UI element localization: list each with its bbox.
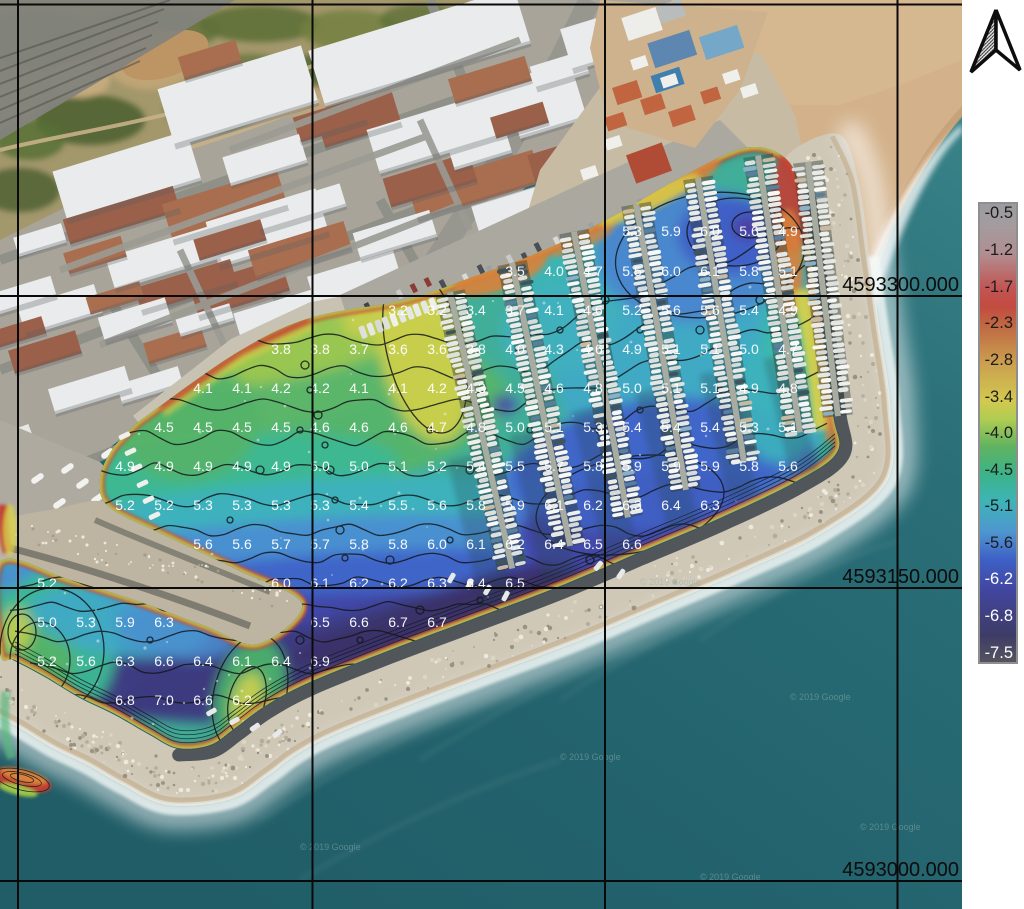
svg-text:5.8: 5.8 [583, 458, 603, 474]
svg-text:-1.7: -1.7 [985, 278, 1013, 296]
svg-text:5.9: 5.9 [700, 458, 720, 474]
svg-text:3.6: 3.6 [388, 341, 408, 357]
svg-text:6.1: 6.1 [700, 263, 720, 279]
svg-text:-5.1: -5.1 [985, 497, 1013, 515]
svg-text:5.4: 5.4 [622, 419, 642, 435]
svg-text:5.9: 5.9 [661, 223, 681, 239]
svg-text:-3.4: -3.4 [985, 388, 1013, 406]
svg-text:5.1: 5.1 [778, 263, 798, 279]
svg-text:6.6: 6.6 [154, 653, 174, 669]
svg-text:6.4: 6.4 [193, 653, 213, 669]
svg-text:5.1: 5.1 [661, 341, 681, 357]
svg-text:5.1: 5.1 [544, 419, 564, 435]
svg-text:4.9: 4.9 [271, 458, 291, 474]
svg-text:4.8: 4.8 [466, 419, 486, 435]
svg-text:5.5: 5.5 [388, 497, 408, 513]
svg-text:4.3: 4.3 [466, 380, 486, 396]
svg-text:6.2: 6.2 [505, 536, 525, 552]
svg-text:5.9: 5.9 [622, 458, 642, 474]
svg-text:© 2019 Google: © 2019 Google [300, 842, 361, 852]
svg-text:5.8: 5.8 [388, 536, 408, 552]
svg-text:4.6: 4.6 [388, 419, 408, 435]
svg-text:4.6: 4.6 [349, 419, 369, 435]
svg-text:4.0: 4.0 [544, 263, 564, 279]
svg-text:5.4: 5.4 [466, 458, 486, 474]
svg-text:5.1: 5.1 [661, 380, 681, 396]
svg-text:6.6: 6.6 [193, 692, 213, 708]
svg-text:4.5: 4.5 [154, 419, 174, 435]
svg-text:5.0: 5.0 [505, 419, 525, 435]
svg-text:5.1: 5.1 [700, 341, 720, 357]
svg-text:5.4: 5.4 [700, 419, 720, 435]
svg-text:4.5: 4.5 [232, 419, 252, 435]
svg-text:4.5: 4.5 [271, 419, 291, 435]
svg-text:5.8: 5.8 [739, 263, 759, 279]
svg-text:6.7: 6.7 [388, 614, 408, 630]
svg-text:4.8: 4.8 [778, 380, 798, 396]
svg-text:5.4: 5.4 [739, 302, 759, 318]
svg-text:5.2: 5.2 [115, 497, 135, 513]
svg-text:4.9: 4.9 [622, 341, 642, 357]
svg-text:6.6: 6.6 [349, 614, 369, 630]
svg-text:4.5: 4.5 [193, 419, 213, 435]
svg-text:5.0: 5.0 [622, 380, 642, 396]
svg-text:4.1: 4.1 [544, 302, 564, 318]
svg-text:5.7: 5.7 [271, 536, 291, 552]
svg-text:6.3: 6.3 [154, 614, 174, 630]
svg-text:6.3: 6.3 [622, 497, 642, 513]
svg-text:6.1: 6.1 [544, 497, 564, 513]
svg-text:6.2: 6.2 [583, 497, 603, 513]
svg-text:5.9: 5.9 [115, 614, 135, 630]
svg-text:5.8: 5.8 [739, 458, 759, 474]
svg-text:5.3: 5.3 [622, 223, 642, 239]
svg-text:5.8: 5.8 [349, 536, 369, 552]
svg-text:4.9: 4.9 [778, 223, 798, 239]
svg-text:6.5: 6.5 [583, 536, 603, 552]
svg-text:4.9: 4.9 [115, 458, 135, 474]
svg-text:5.0: 5.0 [739, 341, 759, 357]
svg-text:6.3: 6.3 [700, 497, 720, 513]
svg-text:5.6: 5.6 [739, 223, 759, 239]
svg-text:4.9: 4.9 [193, 458, 213, 474]
svg-text:4593000.000: 4593000.000 [842, 859, 959, 881]
svg-text:4.6: 4.6 [583, 341, 603, 357]
svg-text:4.9: 4.9 [232, 458, 252, 474]
svg-text:3.7: 3.7 [505, 302, 525, 318]
svg-text:© 2019 Google: © 2019 Google [560, 752, 621, 762]
svg-text:3.5: 3.5 [505, 263, 525, 279]
svg-text:4.1: 4.1 [232, 380, 252, 396]
svg-text:6.1: 6.1 [466, 536, 486, 552]
svg-text:4.2: 4.2 [427, 380, 447, 396]
svg-text:3.8: 3.8 [271, 341, 291, 357]
svg-text:5.6: 5.6 [778, 458, 798, 474]
svg-text:5.2: 5.2 [37, 653, 57, 669]
svg-text:4.6: 4.6 [583, 302, 603, 318]
svg-text:6.8: 6.8 [115, 692, 135, 708]
svg-text:6.4: 6.4 [271, 653, 291, 669]
svg-text:5.1: 5.1 [388, 458, 408, 474]
svg-text:6.2: 6.2 [232, 692, 252, 708]
svg-text:3.4: 3.4 [466, 302, 486, 318]
svg-text:-4.5: -4.5 [985, 461, 1013, 479]
svg-text:6.6: 6.6 [622, 536, 642, 552]
svg-text:5.1: 5.1 [778, 419, 798, 435]
svg-text:6.7: 6.7 [427, 614, 447, 630]
svg-text:© 2019 Google: © 2019 Google [860, 822, 921, 832]
svg-text:4.1: 4.1 [193, 380, 213, 396]
svg-text:3.2: 3.2 [388, 302, 408, 318]
svg-text:5.4: 5.4 [661, 419, 681, 435]
svg-text:5.3: 5.3 [583, 419, 603, 435]
svg-text:4.7: 4.7 [583, 263, 603, 279]
svg-text:4.9: 4.9 [778, 302, 798, 318]
svg-text:5.6: 5.6 [427, 497, 447, 513]
svg-text:4593300.000: 4593300.000 [842, 274, 959, 296]
svg-text:4.1: 4.1 [349, 380, 369, 396]
svg-text:5.8: 5.8 [466, 497, 486, 513]
svg-text:4.7: 4.7 [778, 341, 798, 357]
svg-text:5.5: 5.5 [622, 263, 642, 279]
svg-text:6.4: 6.4 [544, 536, 564, 552]
svg-text:-4.0: -4.0 [985, 424, 1013, 442]
svg-text:-6.8: -6.8 [985, 607, 1013, 625]
svg-text:5.3: 5.3 [76, 614, 96, 630]
svg-text:5.3: 5.3 [232, 497, 252, 513]
svg-text:4.9: 4.9 [739, 380, 759, 396]
svg-text:4.2: 4.2 [271, 380, 291, 396]
svg-text:-2.8: -2.8 [985, 351, 1013, 369]
svg-text:© 2019 Google: © 2019 Google [640, 577, 701, 587]
svg-text:4.7: 4.7 [427, 419, 447, 435]
svg-text:5.5: 5.5 [505, 458, 525, 474]
svg-text:-7.5: -7.5 [985, 644, 1013, 662]
svg-text:5.6: 5.6 [700, 302, 720, 318]
svg-text:5.0: 5.0 [349, 458, 369, 474]
svg-text:5.0: 5.0 [37, 614, 57, 630]
svg-text:6.0: 6.0 [700, 223, 720, 239]
svg-text:6.3: 6.3 [115, 653, 135, 669]
svg-text:6.0: 6.0 [427, 536, 447, 552]
svg-text:5.3: 5.3 [739, 419, 759, 435]
svg-text:6.4: 6.4 [661, 497, 681, 513]
svg-text:5.1: 5.1 [700, 380, 720, 396]
svg-text:-6.2: -6.2 [985, 570, 1013, 588]
svg-text:5.7: 5.7 [544, 458, 564, 474]
svg-text:6.1: 6.1 [232, 653, 252, 669]
svg-text:5.2: 5.2 [154, 497, 174, 513]
svg-text:5.3: 5.3 [271, 497, 291, 513]
svg-text:4.3: 4.3 [544, 341, 564, 357]
svg-text:5.4: 5.4 [349, 497, 369, 513]
svg-text:3.8: 3.8 [466, 341, 486, 357]
svg-text:6.0: 6.0 [661, 263, 681, 279]
svg-text:4.5: 4.5 [505, 380, 525, 396]
svg-text:-1.2: -1.2 [985, 241, 1013, 259]
svg-text:5.2: 5.2 [622, 302, 642, 318]
svg-text:4.6: 4.6 [544, 380, 564, 396]
svg-text:-5.6: -5.6 [985, 534, 1013, 552]
svg-text:-0.5: -0.5 [985, 204, 1013, 222]
svg-text:5.6: 5.6 [232, 536, 252, 552]
svg-text:4.0: 4.0 [505, 341, 525, 357]
svg-text:© 2019 Google: © 2019 Google [790, 692, 851, 702]
svg-text:4.9: 4.9 [154, 458, 174, 474]
svg-text:5.3: 5.3 [193, 497, 213, 513]
svg-text:5.6: 5.6 [661, 302, 681, 318]
svg-text:4.1: 4.1 [388, 380, 408, 396]
svg-text:3.6: 3.6 [427, 341, 447, 357]
svg-text:7.0: 7.0 [154, 692, 174, 708]
svg-text:5.2: 5.2 [427, 458, 447, 474]
svg-text:3.2: 3.2 [427, 302, 447, 318]
svg-text:5.9: 5.9 [661, 458, 681, 474]
svg-text:4593150.000: 4593150.000 [842, 566, 959, 588]
svg-text:5.9: 5.9 [505, 497, 525, 513]
svg-text:5.6: 5.6 [193, 536, 213, 552]
svg-text:5.6: 5.6 [76, 653, 96, 669]
svg-text:4.8: 4.8 [583, 380, 603, 396]
svg-text:3.7: 3.7 [349, 341, 369, 357]
svg-text:-2.3: -2.3 [985, 314, 1013, 332]
